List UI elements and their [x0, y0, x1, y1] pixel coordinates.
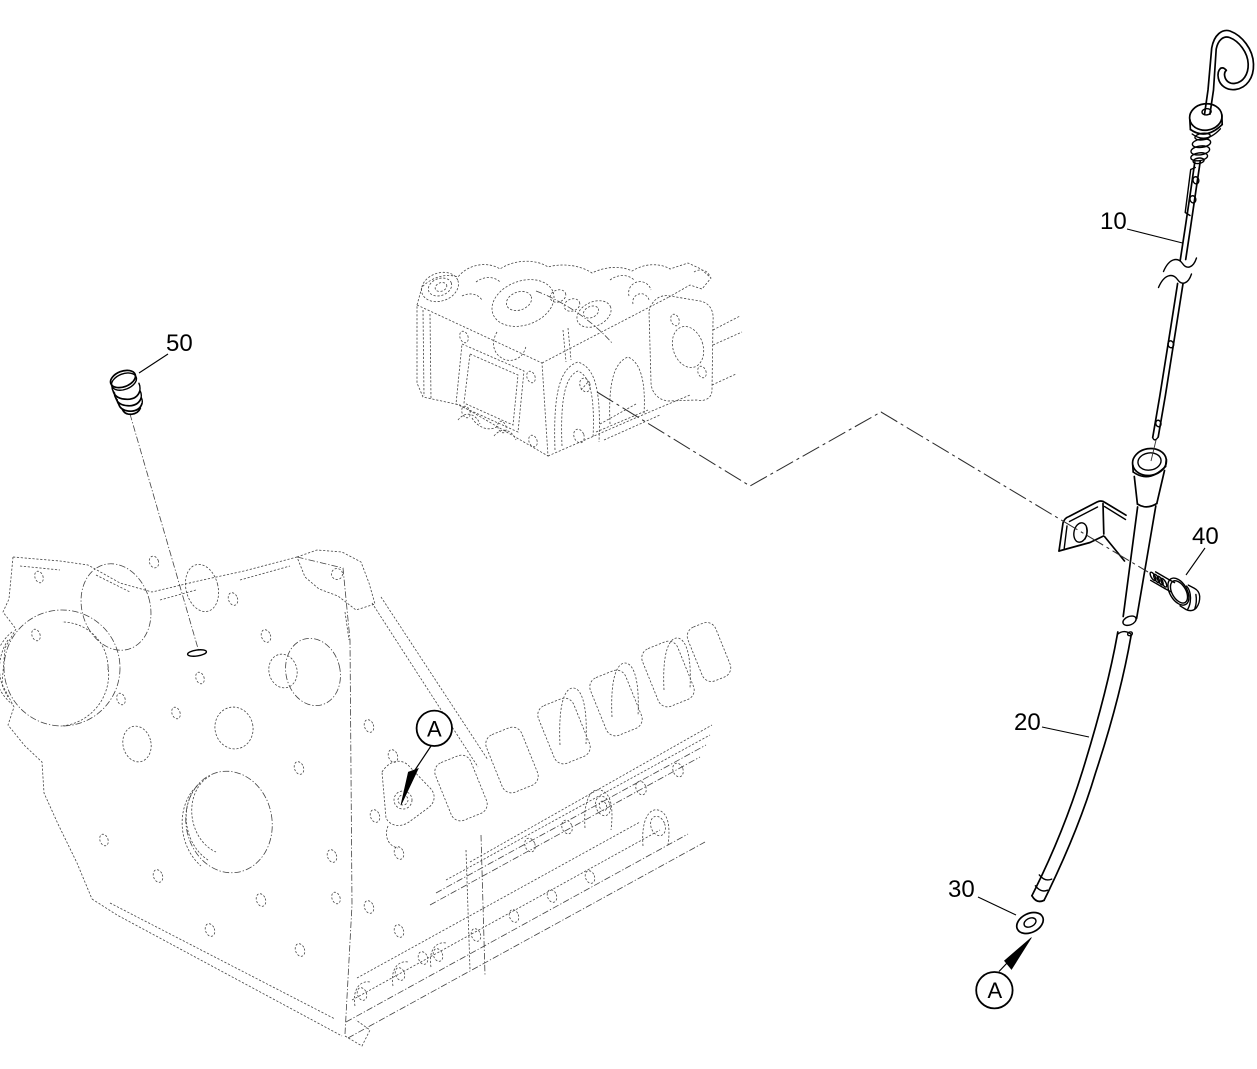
svg-text:40: 40 [1192, 523, 1219, 550]
svg-text:50: 50 [166, 330, 193, 357]
svg-text:20: 20 [1014, 709, 1041, 736]
svg-text:10: 10 [1100, 208, 1127, 235]
svg-text:A: A [427, 716, 442, 741]
svg-text:A: A [987, 978, 1002, 1003]
svg-text:30: 30 [948, 876, 975, 903]
